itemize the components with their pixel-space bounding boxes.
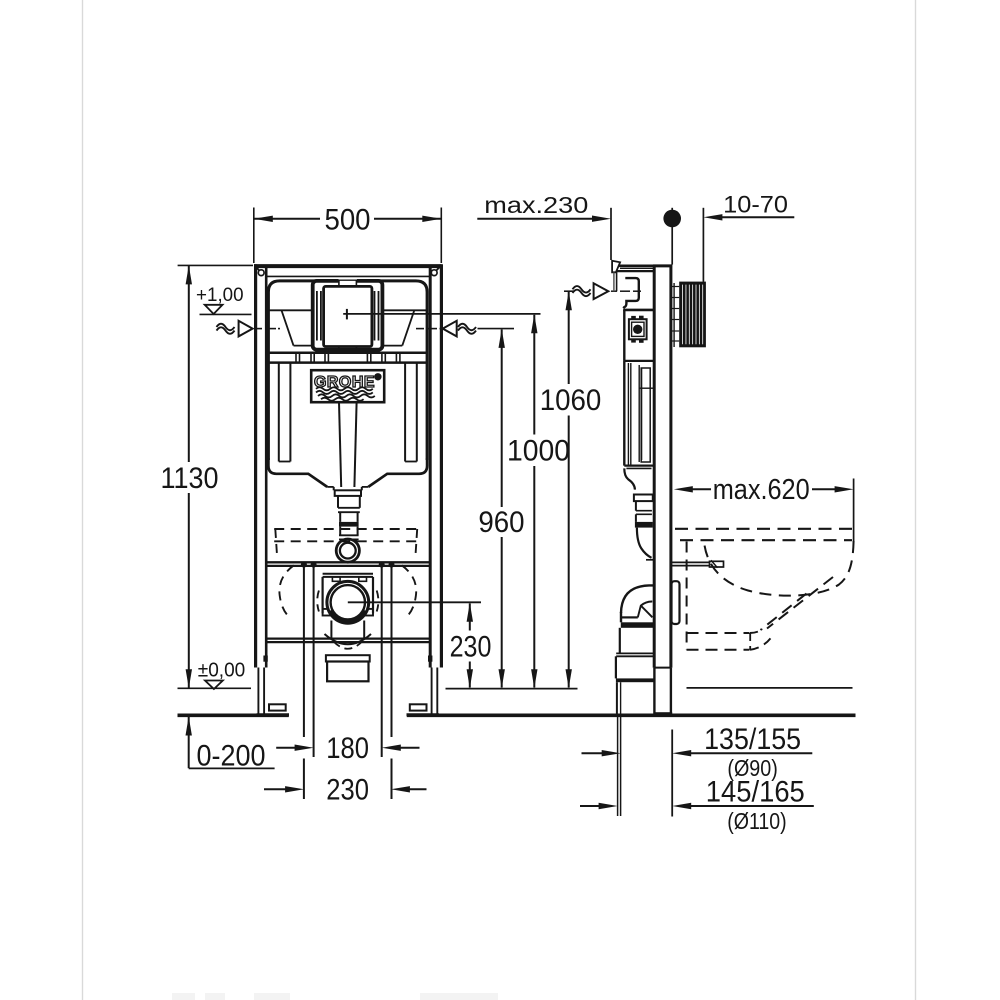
svg-text:500: 500: [325, 203, 371, 236]
svg-text:±0,00: ±0,00: [198, 660, 246, 682]
svg-text:230: 230: [450, 630, 492, 663]
svg-text:10-70: 10-70: [723, 192, 788, 219]
svg-text:max.230: max.230: [484, 192, 588, 218]
svg-text:1060: 1060: [540, 384, 602, 417]
svg-text:145/165: 145/165: [706, 776, 805, 809]
svg-text:+1,00: +1,00: [196, 285, 244, 306]
svg-text:180: 180: [326, 732, 369, 765]
svg-text:960: 960: [478, 506, 524, 539]
svg-text:0-200: 0-200: [197, 739, 266, 772]
svg-text:1130: 1130: [161, 462, 219, 495]
svg-text:230: 230: [326, 774, 369, 807]
svg-text:(Ø110): (Ø110): [727, 808, 786, 834]
svg-text:135/155: 135/155: [704, 723, 801, 756]
svg-text:1000: 1000: [507, 435, 570, 468]
svg-text:max.620: max.620: [713, 474, 810, 506]
